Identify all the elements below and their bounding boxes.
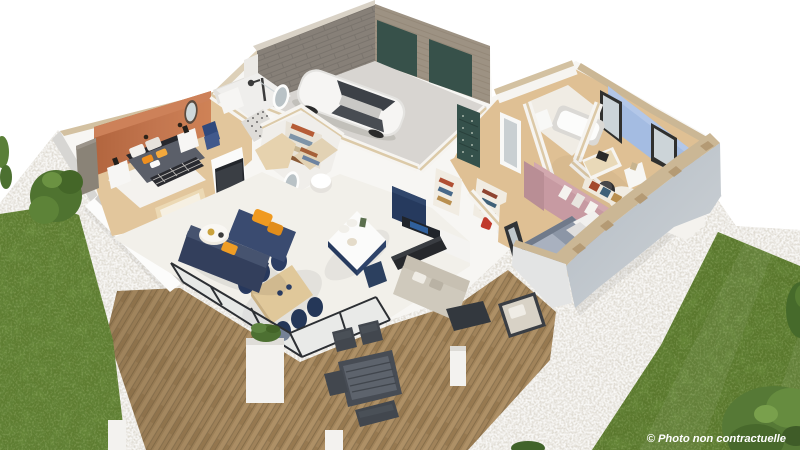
- svg-text:© Photo non contractuelle: © Photo non contractuelle: [647, 433, 786, 445]
